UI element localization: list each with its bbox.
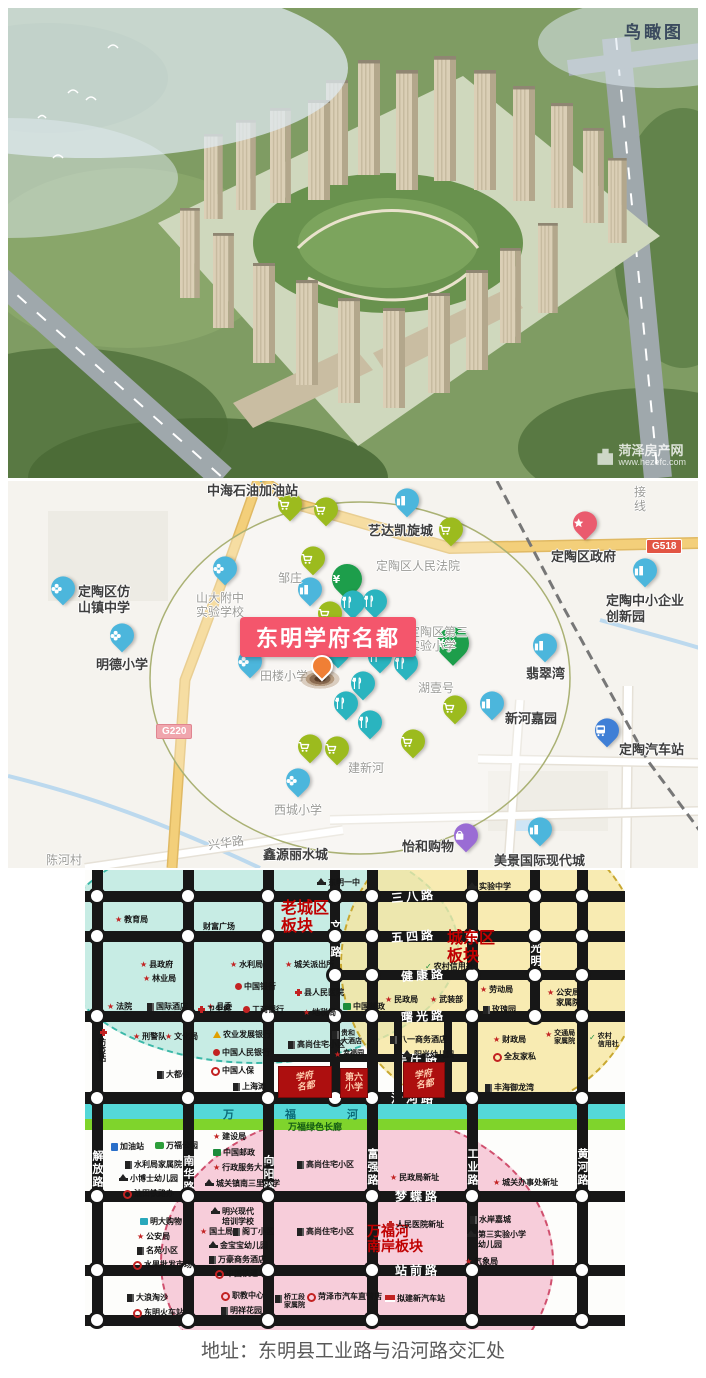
map-area-label: 中海石油加油站 — [207, 483, 298, 499]
bldg-icon — [233, 1228, 240, 1236]
road-number-badge: G518 — [646, 539, 682, 554]
map-poi-label: 定陶区政府 — [551, 549, 616, 565]
road-intersection — [179, 1187, 197, 1205]
map-area-label: 山大附中 实验学校 — [196, 591, 244, 620]
aerial-artwork — [8, 8, 698, 478]
pump-icon — [111, 1143, 118, 1151]
poi: 工商银行 — [243, 1005, 284, 1015]
bldg-icon — [127, 1294, 134, 1302]
road-intersection — [363, 887, 381, 905]
post-icon — [343, 1003, 351, 1010]
poi: ★城关派出所 — [285, 960, 334, 970]
poi: 明兴现代 培训学校 — [211, 1207, 254, 1226]
poi: ★县政府 — [140, 960, 173, 970]
poi: ★劳动局 — [480, 985, 513, 995]
poi: 大都会 — [157, 1070, 190, 1080]
road-intersection — [363, 1187, 381, 1205]
cartT-icon — [140, 1218, 148, 1225]
poi: ★交通局 家属院 — [545, 1030, 575, 1047]
poi: ★公安局 — [137, 1232, 170, 1242]
cap-icon — [467, 1234, 476, 1237]
poi: 高尚住宅小区 — [297, 1160, 354, 1170]
zone-name-label: 城东区 板块 — [447, 930, 495, 965]
cross-icon — [198, 1006, 205, 1013]
road-horizontal: 三八路 — [85, 891, 625, 902]
cross-icon — [100, 1029, 107, 1036]
road-intersection — [259, 927, 277, 945]
poi: ★武装部 — [430, 995, 463, 1005]
poi: 万豪商务酒店 — [209, 1255, 266, 1265]
road-intersection — [179, 927, 197, 945]
poi: ★行政服务大厅 — [213, 1163, 270, 1173]
aerial-corner-label: 鸟瞰图 — [624, 18, 684, 43]
road-vertical — [444, 1016, 452, 1104]
bldg-icon — [297, 1161, 304, 1169]
map-area-label: 邹庄 — [278, 571, 302, 585]
poi: 县人民医院 — [295, 988, 344, 998]
road-horizontal: 五四路 — [85, 931, 625, 942]
road-intersection — [363, 1261, 381, 1279]
star-icon: ★ — [385, 996, 392, 1004]
road-intersection — [259, 887, 277, 905]
road-intersection — [526, 1007, 544, 1025]
poi: 农业发展银行 — [213, 1030, 271, 1040]
cap-icon — [211, 1211, 220, 1214]
road-intersection — [88, 1311, 106, 1329]
road-name-label: 曙光路 — [401, 1006, 447, 1025]
road-intersection — [463, 1311, 481, 1329]
bldg-icon — [137, 1247, 144, 1255]
road-intersection — [573, 927, 591, 945]
check-icon: ✓ — [425, 963, 432, 971]
star-icon: ★ — [230, 961, 237, 969]
road-intersection — [88, 1089, 106, 1107]
road-intersection — [573, 1007, 591, 1025]
road-name-label: 梦蝶路 — [395, 1188, 440, 1205]
star-icon: ★ — [200, 1228, 207, 1236]
poi: ★教育局 — [115, 915, 148, 925]
poi: 阳光幼儿园 — [403, 1050, 454, 1060]
map-poi-label: 定陶区仿 山镇中学 — [78, 584, 130, 615]
map-poi-label: 明德小学 — [96, 657, 148, 673]
road-vertical — [394, 1016, 402, 1104]
bldg-icon — [332, 1031, 339, 1039]
poi: ★刑警队 — [133, 1032, 166, 1042]
redo-icon — [215, 1270, 224, 1279]
bldg-icon — [147, 1003, 154, 1011]
project-block: 学府 名都 — [403, 1062, 445, 1098]
reddot-icon — [235, 983, 242, 990]
star-icon: ★ — [137, 1233, 144, 1241]
star-icon: ★ — [547, 989, 554, 997]
star-icon: ★ — [133, 1033, 140, 1041]
road-name-label: 解放路 — [89, 1150, 105, 1189]
map-poi-label: 怡和购物 — [402, 839, 454, 855]
cap-icon — [205, 1183, 214, 1186]
poi: ★幸福园 — [334, 1050, 364, 1059]
bldg-icon — [221, 1307, 228, 1315]
poi: ★法院 — [107, 1002, 132, 1012]
poi: 菏泽市汽车直营店 — [307, 1292, 382, 1302]
poi: 高尚住宅小区 — [297, 1227, 354, 1237]
star-icon: ★ — [165, 1033, 172, 1041]
poi: 中国邮政 — [213, 1148, 255, 1158]
planning-map: 万福河万福绿色长廊三八路五四路健康路曙光路吴庄路沿河路梦蝶路站前路解放路南华路向… — [85, 870, 625, 1330]
flag-icon — [385, 1295, 395, 1302]
road-intersection — [179, 887, 197, 905]
reddot-icon — [243, 1006, 250, 1013]
poi: ★国土局 — [200, 1227, 233, 1237]
poi: 中国人民银行 — [213, 1048, 270, 1058]
road-intersection — [88, 927, 106, 945]
road-intersection — [259, 1187, 277, 1205]
poi: 阁丁小区 — [233, 1227, 274, 1237]
poi: ★民政局新址 — [390, 1173, 439, 1183]
cross-icon — [295, 989, 302, 996]
poi: ★财政局 — [493, 1035, 526, 1045]
redo-icon — [133, 1309, 142, 1318]
star-icon: ★ — [143, 975, 150, 983]
map-area-label: 湖壹号 — [418, 681, 454, 695]
watermark-building-icon — [597, 447, 613, 465]
poi: 拟建新汽车站 — [385, 1294, 445, 1304]
bldg-icon — [157, 1071, 164, 1079]
cap-icon — [119, 1178, 128, 1181]
cap-icon — [317, 882, 326, 885]
poi: 贵和 大酒店 — [332, 1030, 362, 1047]
star-icon: ★ — [140, 961, 147, 969]
poi: 中国人保 — [211, 1066, 254, 1076]
poi: 明大购物 — [140, 1217, 182, 1227]
poi: ★文化局 — [165, 1032, 198, 1042]
poi: 实验中学 — [468, 882, 511, 892]
road-intersection — [463, 1187, 481, 1205]
star-icon: ★ — [334, 1051, 341, 1059]
poi: 水岸嘉城 — [470, 1215, 511, 1225]
road-intersection — [463, 1007, 481, 1025]
bldg-icon — [485, 1084, 492, 1092]
poi: 第三实验小学 幼儿园 — [467, 1230, 526, 1249]
road-intersection — [573, 1261, 591, 1279]
map-area-label: 接 线 — [634, 485, 646, 514]
star-icon: ★ — [115, 916, 122, 924]
planning-map-section[interactable]: 万福河万福绿色长廊三八路五四路健康路曙光路吴庄路沿河路梦蝶路站前路解放路南华路向… — [0, 868, 706, 1338]
poi: 人民医院新址 — [387, 1220, 444, 1230]
poi: 桥工段 家属院 — [275, 1294, 305, 1311]
poi: 中国邮政 — [343, 1002, 385, 1012]
bldg-icon — [233, 1083, 240, 1091]
poi: ★水利局 — [230, 960, 263, 970]
poi: 明祥花园 — [221, 1306, 262, 1316]
map-area-label: 定陶区人民法院 — [376, 559, 460, 573]
poi: ✓农村信用社 — [425, 962, 474, 972]
road-name-label: 富强路 — [364, 1148, 380, 1187]
poi: ★民政局 — [385, 995, 418, 1005]
map-area-label: 陈河村 — [46, 853, 82, 867]
star-icon: ★ — [213, 1133, 220, 1141]
post-icon — [213, 1149, 221, 1156]
poi: 国际酒店 — [147, 1002, 188, 1012]
poi: ★林业局 — [143, 974, 176, 984]
redo-icon — [493, 1053, 502, 1062]
bldg-icon — [125, 1161, 132, 1169]
redo-icon — [133, 1261, 142, 1270]
park-icon — [155, 1142, 164, 1149]
poi: 万福公园 — [155, 1141, 198, 1151]
road-name-label: 黄河路 — [574, 1148, 590, 1187]
bldg-icon — [209, 1256, 216, 1264]
star-icon: ★ — [545, 1031, 552, 1039]
star-icon: ★ — [493, 1179, 500, 1187]
map-poi-label: 定陶汽车站 — [619, 742, 684, 758]
poi: 玫瑰园 — [483, 1005, 516, 1015]
road-intersection — [88, 1007, 106, 1025]
poi: 金宝宝幼儿园 — [209, 1241, 268, 1251]
project-block: 学府 名都 — [278, 1066, 332, 1098]
road-intersection — [526, 927, 544, 945]
star-icon: ★ — [465, 1258, 472, 1266]
road-intersection — [573, 1089, 591, 1107]
map-poi-label: 美景国际现代城 — [494, 853, 585, 868]
road-intersection — [88, 1261, 106, 1279]
star-icon: ★ — [390, 1174, 397, 1182]
poi: 水果批发市场 — [133, 1260, 192, 1270]
poi: ★气象局 — [465, 1257, 498, 1267]
zone-name-label: 老城区 板块 — [281, 900, 329, 935]
poi: 东明火车站 — [133, 1308, 184, 1318]
location-map[interactable]: ¥ — [8, 481, 698, 868]
cross-icon — [387, 1221, 394, 1228]
watermark-site-url: www.hezefc.com — [618, 458, 686, 468]
poi: 油田铁路办 — [123, 1189, 174, 1199]
road-name-label: 站前路 — [395, 1262, 440, 1279]
map-poi-label: 西城小学 — [274, 803, 322, 817]
road-intersection — [573, 1187, 591, 1205]
poi: 丰海御龙湾 — [485, 1083, 534, 1093]
poi: 中国铁通 — [215, 1269, 258, 1279]
road-name-label: 工业路 — [464, 1148, 480, 1187]
poi: ★公安局 家属院 — [547, 988, 580, 1007]
address-caption: 地址：东明县工业路与沿河路交汇处 — [0, 1336, 706, 1363]
road-intersection — [573, 966, 591, 984]
star-icon: ★ — [303, 1009, 310, 1017]
road-intersection — [363, 927, 381, 945]
road-intersection — [88, 1187, 106, 1205]
redo-icon — [307, 1293, 316, 1302]
redo-icon — [123, 1190, 132, 1199]
map-poi-label: 新河嘉园 — [505, 711, 557, 727]
poi: 水利局家属院 — [125, 1160, 182, 1170]
watermark-site-name: 菏泽房产网 — [618, 444, 686, 458]
check-icon: ✓ — [589, 1034, 596, 1042]
bldg-icon — [470, 1216, 477, 1224]
road-number-badge: G220 — [156, 724, 192, 739]
poi: ★地税局 — [303, 1008, 336, 1018]
poi: 职教中心 — [221, 1291, 264, 1301]
map-poi-label: 艺达凯旋城 — [368, 523, 433, 539]
road-intersection — [363, 1311, 381, 1329]
bldg-icon — [297, 1228, 304, 1236]
bldg-icon — [390, 1036, 397, 1044]
tri-icon — [213, 1031, 221, 1038]
reddot-icon — [213, 1049, 220, 1056]
star-icon: ★ — [493, 1036, 500, 1044]
road-intersection — [573, 887, 591, 905]
poi: 名苑小区 — [137, 1246, 178, 1256]
river-name-char: 万 — [223, 1106, 234, 1122]
map-poi-label: 定陶中小企业 创新园 — [606, 593, 684, 624]
road-intersection — [259, 1089, 277, 1107]
star-icon: ★ — [107, 1003, 114, 1011]
poi: 中国银行 — [235, 982, 276, 992]
poi: 财富广场 — [203, 922, 235, 932]
road-intersection — [88, 887, 106, 905]
poi: 加油站 — [111, 1142, 144, 1152]
map-area-label: 定陶区第三 实验小学 — [408, 625, 468, 654]
map-area-label: 鑫源丽水城 — [263, 847, 328, 863]
map-poi-label: 翡翠湾 — [526, 666, 565, 682]
road-intersection — [463, 1089, 481, 1107]
poi: ★城关办事处新址 — [493, 1178, 558, 1188]
poi: 防疫站 — [97, 1028, 107, 1062]
redo-icon — [221, 1292, 230, 1301]
road-intersection — [526, 887, 544, 905]
bldg-icon — [483, 1006, 490, 1014]
project-name-label: 东明学府名都 — [240, 617, 416, 657]
school-block: 第六 小学 — [340, 1068, 368, 1098]
poi: 卫生局 — [198, 1005, 231, 1015]
poi: 小博士幼儿园 — [119, 1174, 178, 1184]
poi: 八一商务酒店 — [390, 1035, 447, 1045]
site-watermark: 菏泽房产网 www.hezefc.com — [597, 444, 686, 468]
star-icon: ★ — [285, 961, 292, 969]
star-icon: ★ — [480, 986, 487, 994]
road-name-label: 五四路 — [390, 926, 436, 946]
bldg-icon — [275, 1295, 282, 1303]
road-intersection — [179, 1089, 197, 1107]
map-area-label: 建新河 — [348, 761, 384, 775]
aerial-rendering[interactable]: 鸟瞰图 菏泽房产网 www.hezefc.com — [8, 8, 698, 478]
poi: 城关镇南三里小学 — [205, 1179, 280, 1189]
cap-icon — [403, 1054, 412, 1057]
poi: ✓农村 信用社 — [589, 1033, 619, 1050]
road-intersection — [363, 966, 381, 984]
road-intersection — [573, 1311, 591, 1329]
poi: ★建设局 — [213, 1132, 246, 1142]
road-horizontal: 曙光路 — [85, 1011, 625, 1022]
redo-icon — [211, 1067, 220, 1076]
cap-icon — [209, 1245, 218, 1248]
poi: 上海滩 — [233, 1082, 266, 1092]
star-icon: ★ — [213, 1164, 220, 1172]
road-intersection — [526, 966, 544, 984]
poi: 大浪淘沙 — [127, 1293, 168, 1303]
star-icon: ★ — [430, 996, 437, 1004]
poi: 全友家私 — [493, 1052, 536, 1062]
river-name-char: 河 — [347, 1106, 358, 1122]
poi: 东明一中 — [317, 878, 360, 888]
bldg-icon — [288, 1041, 295, 1049]
green-corridor-label: 万福绿色长廊 — [288, 1120, 342, 1133]
cap-icon — [468, 886, 477, 889]
